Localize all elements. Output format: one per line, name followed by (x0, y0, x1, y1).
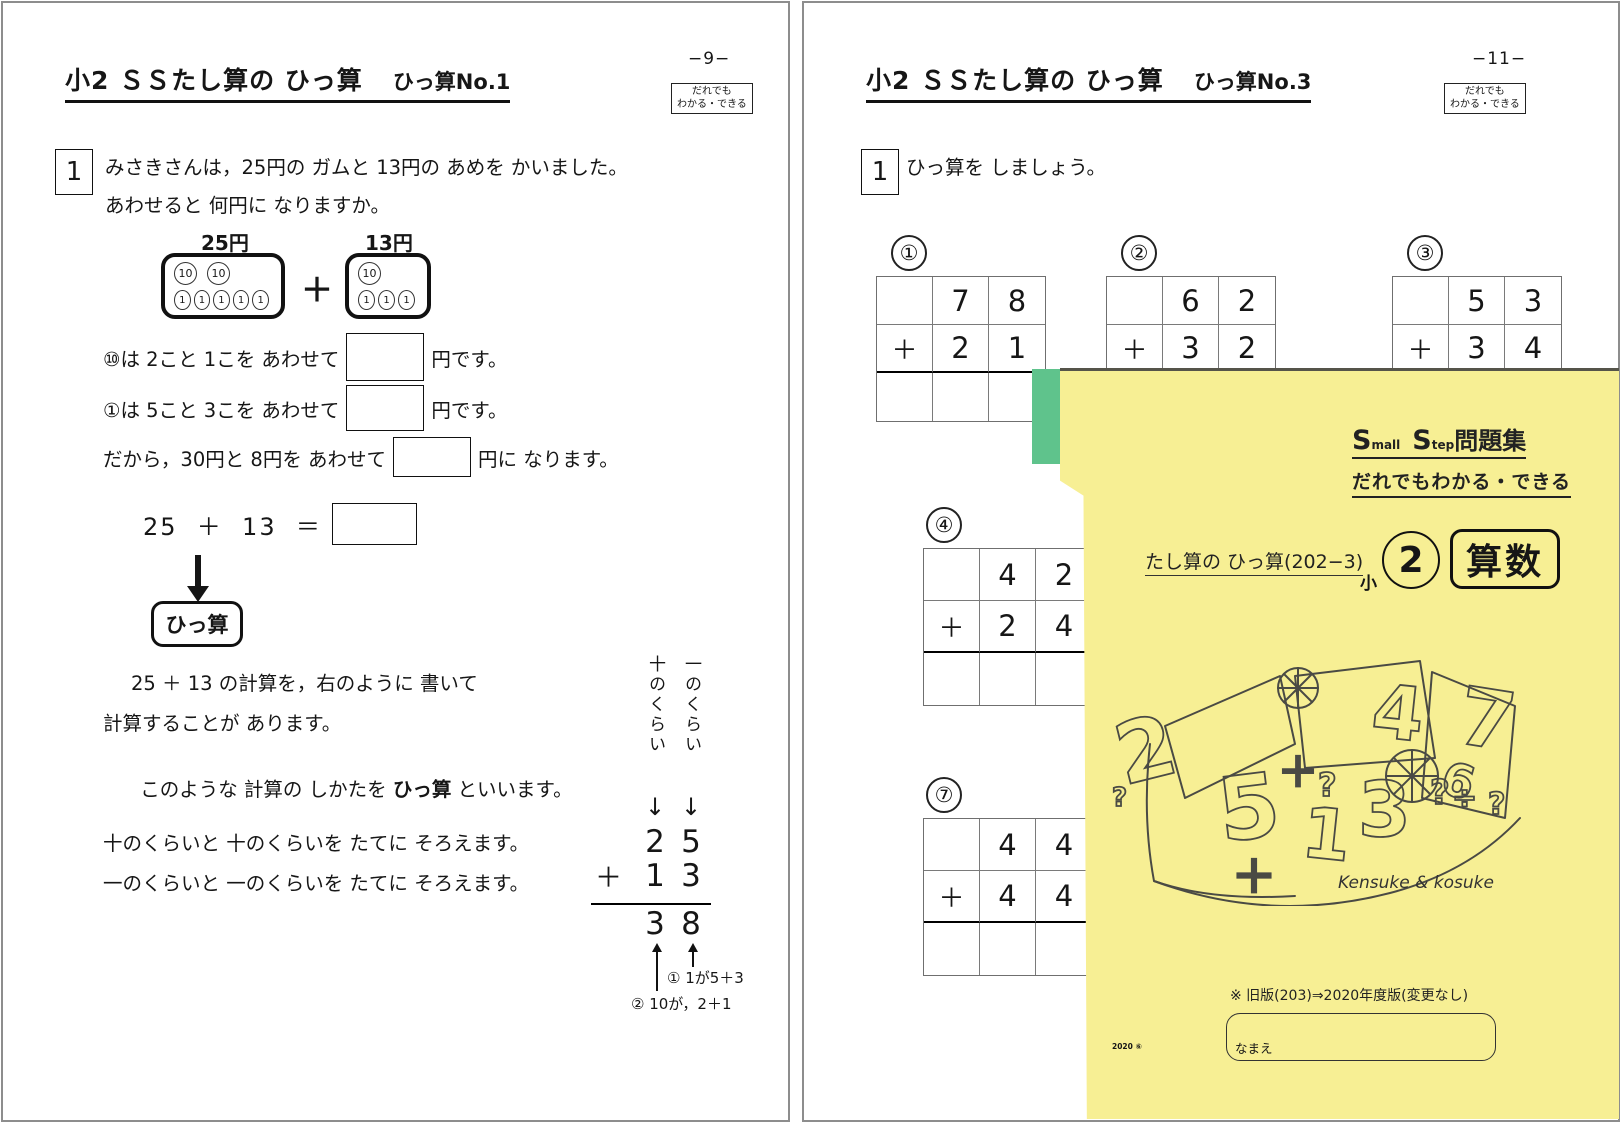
grid-cell: 4 (1505, 325, 1561, 373)
problem-number-circle: ① (891, 235, 927, 271)
explanation-line3-pre: このような 計算の しかたを (140, 778, 393, 801)
publisher-badge: だれでも わかる・できる (1444, 83, 1526, 114)
coin-1-icon: 1 (398, 290, 415, 310)
vcalc-note1: ① 1が5＋3 (667, 967, 744, 988)
booklet-title-s1: S (1352, 425, 1371, 456)
coin-box-25yen: 10 10 1 1 1 1 1 (161, 253, 285, 319)
authors-signature: Kensuke & kosuke (1338, 873, 1494, 893)
grid-cell (924, 819, 980, 871)
question-text-line2: あわせると 何円に なりますか。 (105, 193, 390, 219)
grid-cell-plus: ＋ (1107, 325, 1163, 373)
question-text-line1: みさきさんは，25円の ガムと 13円の あめを かいました。 (105, 155, 628, 181)
grade-prefix: 小 (1360, 569, 1377, 594)
grid-cell: 3 (1505, 277, 1561, 325)
equation-text: 25 ＋ 13 ＝ (143, 507, 322, 542)
sum-line (591, 903, 711, 905)
answer-box[interactable] (346, 333, 424, 381)
doodle-symbol: ? (1488, 787, 1505, 822)
worksheet-title-number: ひっ算No.3 (1194, 66, 1312, 96)
coin-10-icon: 10 (358, 262, 381, 285)
badge-line2: わかる・できる (677, 99, 747, 112)
worksheet-title-number: ひっ算No.1 (393, 66, 511, 96)
grid-cell-answer[interactable] (924, 653, 980, 705)
booklet-cover: SmallStep問題集 だれでもわかる・できる たし算の ひっ算(202−3)… (1060, 368, 1619, 1119)
doodle-symbol: ÷ (1452, 781, 1477, 816)
booklet-topic: たし算の ひっ算(202−3) (1145, 547, 1363, 576)
grid-cell-plus: ＋ (924, 601, 980, 653)
problem-number-circle: ④ (926, 507, 962, 543)
booklet-green-tab (1032, 369, 1062, 464)
explanation-line2: 計算することが あります。 (103, 711, 341, 737)
hissan-grid: 7 8 ＋ 2 1 (876, 276, 1046, 422)
explanation-line5: 一のくらいと 一のくらいを たてに そろえます。 (103, 871, 529, 897)
fill-line-total: だから，30円と 8円を あわせて 円に なります。 (103, 437, 619, 477)
one-coin-row: 1 1 1 1 1 (174, 290, 272, 310)
coin-1-icon: 1 (174, 290, 191, 310)
booklet-title-s2: S (1412, 425, 1431, 456)
hissan-label-box: ひっ算 (151, 601, 243, 647)
question-number-box: 1 (861, 149, 899, 195)
coin-1-icon: 1 (252, 290, 269, 310)
answer-box[interactable] (332, 503, 417, 545)
name-field-box[interactable]: なまえ (1226, 1013, 1496, 1061)
page-number: −11− (1472, 49, 1526, 69)
fill-line-post: 円です。 (431, 394, 507, 423)
vcalc-result-digit: 3 (637, 909, 673, 940)
grid-cell: 8 (989, 277, 1045, 325)
grid-cell (924, 549, 980, 601)
vcalc-result-digit: 8 (673, 909, 709, 940)
coin-group-label-25yen: 25円 (201, 227, 249, 256)
edition-note: ※ 旧版(203)⇒2020年度版(変更なし) (1230, 985, 1468, 1005)
vcalc-digit: 3 (673, 861, 709, 892)
worksheet-title: 小2 ＳＳたし算の ひっ算 ひっ算No.1 (65, 61, 510, 103)
fill-line-pre: だから，30円と 8円を あわせて (103, 443, 386, 472)
worksheet-title-main: 小2 ＳＳたし算の ひっ算 (65, 61, 363, 97)
ten-coin-row: 10 (358, 262, 418, 285)
grid-cell-plus: ＋ (877, 325, 933, 373)
vcalc-digit: 1 (637, 861, 673, 892)
grid-cell-answer[interactable] (924, 923, 980, 975)
doodle-symbol: ? (1112, 783, 1127, 813)
explanation-line3-post: といいます。 (451, 778, 572, 801)
coin-1-icon: 1 (194, 290, 211, 310)
vcalc-plus-sign: ＋ (595, 865, 622, 892)
booklet-title-small1: mall (1371, 438, 1400, 452)
down-arrow-icon: ↓ (637, 795, 673, 819)
numbers-doodle-illustration: 2 5 1 3 4 7 6 ＋ ＋ ÷ ? ? ? ? (1090, 646, 1545, 906)
doodle-symbol: ? (1430, 773, 1450, 813)
explanation-line1: 25 ＋ 13 の計算を，右のように 書いて (131, 671, 478, 697)
grid-cell: 6 (1163, 277, 1219, 325)
doodle-symbol: ＋ (1232, 852, 1276, 903)
one-coin-row: 1 1 1 (358, 290, 418, 310)
grid-cell: 2 (1219, 325, 1275, 373)
grid-cell (1107, 277, 1163, 325)
print-code: 2020 ⑥ (1112, 1043, 1142, 1051)
grid-cell-answer[interactable] (1036, 653, 1092, 705)
down-arrow-icon: ↓ (673, 795, 709, 819)
grid-cell: 2 (933, 325, 989, 373)
doodle-digit: 5 (1212, 753, 1285, 863)
fill-line-pre: ①は 5こと 3こを あわせて (103, 394, 339, 423)
grid-cell (877, 277, 933, 325)
hissan-grid: 4 2 ＋ 2 4 (923, 548, 1093, 706)
doodle-symbol: ? (1318, 766, 1337, 804)
coin-box-13yen: 10 1 1 1 (345, 253, 431, 319)
up-arrow-icon (656, 951, 658, 991)
booklet-title: SmallStep問題集 (1352, 421, 1526, 459)
ones-place-vertical-label: 一のくらい (682, 655, 699, 755)
grade-number-circle: 2 (1382, 531, 1440, 589)
grid-cell: 2 (980, 601, 1036, 653)
equation-row: 25 ＋ 13 ＝ (143, 503, 424, 545)
badge-line2: わかる・できる (1450, 99, 1520, 112)
grid-cell-plus: ＋ (924, 871, 980, 923)
up-arrow-icon (692, 951, 694, 967)
grid-cell: 4 (980, 549, 1036, 601)
grid-cell: 5 (1449, 277, 1505, 325)
coin-1-icon: 1 (213, 290, 230, 310)
tens-place-vertical-label: 十のくらい (646, 655, 663, 755)
question-number-box: 1 (55, 149, 93, 195)
grid-cell (1393, 277, 1449, 325)
explanation-line4: 十のくらいと 十のくらいを たてに そろえます。 (103, 831, 529, 857)
fill-line-pre: ⑩は 2こと 1こを あわせて (103, 343, 339, 372)
problem-number-circle: ⑦ (926, 777, 962, 813)
vcalc-note2: ② 10が，2＋1 (631, 993, 732, 1014)
problem-number-circle: ③ (1407, 235, 1443, 271)
badge-line1: だれでも (1450, 86, 1520, 99)
subject-box: 算数 (1450, 529, 1560, 589)
ten-coin-row: 10 10 (174, 262, 272, 285)
name-field-label: なまえ (1235, 1038, 1273, 1057)
grid-cell: 4 (1036, 871, 1092, 923)
fill-line-ones: ①は 5こと 3こを あわせて 円です。 (103, 385, 507, 431)
grid-cell: 1 (989, 325, 1045, 373)
scanned-worksheet-canvas: −9− だれでも わかる・できる 小2 ＳＳたし算の ひっ算 ひっ算No.1 1… (0, 0, 1621, 1126)
booklet-subtitle: だれでもわかる・できる (1352, 467, 1571, 498)
doodle-digit: 1 (1298, 791, 1355, 878)
doodle-symbol: ＋ (1278, 750, 1318, 796)
coin-1-icon: 1 (233, 290, 250, 310)
doodle-digit: 3 (1358, 765, 1411, 854)
problem-number-circle: ② (1121, 235, 1157, 271)
grid-cell-answer[interactable] (877, 373, 933, 421)
doodle-digit: 4 (1368, 668, 1428, 759)
grid-cell-answer[interactable] (980, 923, 1036, 975)
grid-cell-answer[interactable] (1036, 923, 1092, 975)
hissan-grid: 4 4 ＋ 4 4 (923, 818, 1093, 976)
question-text: ひっ算を しましょう。 (906, 155, 1106, 181)
coin-10-icon: 10 (207, 262, 230, 285)
coin-1-icon: 1 (358, 290, 375, 310)
coin-1-icon: 1 (378, 290, 395, 310)
fill-line-post: 円です。 (431, 343, 507, 372)
grid-cell-answer[interactable] (933, 373, 989, 421)
explanation-line3: このような 計算の しかたを ひっ算 といいます。 (103, 751, 573, 830)
grid-cell: 7 (933, 277, 989, 325)
booklet-title-small2: tep (1432, 438, 1454, 452)
grid-cell: 3 (1163, 325, 1219, 373)
grid-cell: 2 (1219, 277, 1275, 325)
fill-line-post: 円に なります。 (478, 443, 619, 472)
grid-cell: 3 (1449, 325, 1505, 373)
worksheet-page-left: −9− だれでも わかる・できる 小2 ＳＳたし算の ひっ算 ひっ算No.1 1… (1, 1, 790, 1122)
page-number: −9− (688, 49, 730, 69)
hissan-keyword: ひっ算 (393, 778, 452, 801)
answer-box[interactable] (393, 437, 471, 477)
fill-line-tens: ⑩は 2こと 1こを あわせて 円です。 (103, 333, 507, 381)
grid-cell-plus: ＋ (1393, 325, 1449, 373)
grid-cell: 4 (980, 871, 1036, 923)
answer-box[interactable] (346, 385, 424, 431)
grid-cell: 4 (1036, 601, 1092, 653)
badge-line1: だれでも (677, 86, 747, 99)
grid-cell: 4 (1036, 819, 1092, 871)
grid-cell-answer[interactable] (980, 653, 1036, 705)
vcalc-digit: 2 (637, 827, 673, 858)
grid-cell: 4 (980, 819, 1036, 871)
vcalc-digit: 5 (673, 827, 709, 858)
worksheet-title: 小2 ＳＳたし算の ひっ算 ひっ算No.3 (866, 61, 1311, 103)
plus-sign: ＋ (301, 265, 333, 311)
booklet-title-rest: 問題集 (1454, 421, 1526, 456)
worksheet-title-main: 小2 ＳＳたし算の ひっ算 (866, 61, 1164, 97)
coin-10-icon: 10 (174, 262, 197, 285)
down-arrow-icon (187, 555, 209, 603)
grid-cell: 2 (1036, 549, 1092, 601)
publisher-badge: だれでも わかる・できる (671, 83, 753, 114)
coin-group-label-13yen: 13円 (365, 227, 413, 256)
